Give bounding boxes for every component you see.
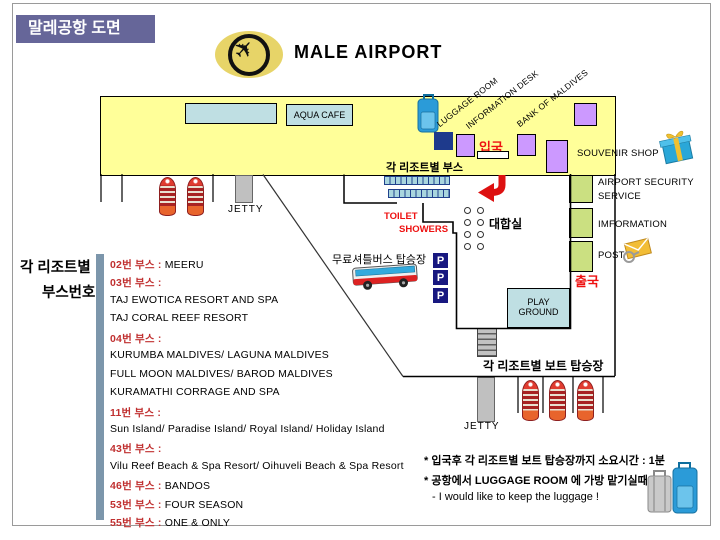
boat-icon [549,380,566,421]
boat-icon [187,177,204,216]
booth-list-item: 53번 부스 : FOUR SEASON [110,497,410,515]
luggage-pair-icon [645,462,699,516]
booth-list-item: KURAMATHI CORRAGE AND SPA [110,386,410,404]
gift-icon [655,125,700,168]
note-line2: * 공항에서 LUGGAGE ROOM 에 가방 맡기실때 [424,472,648,488]
security-label-line2: SERVICE [598,191,641,202]
jetty-north-label: JETTY [228,204,264,215]
booth-list-item: KURUMBA MALDIVES/ LAGUNA MALDIVES [110,349,410,367]
luggage-room-icon [416,94,439,134]
booth-row-1 [384,176,450,185]
booth-list-item: 02번 부스 : MEERU [110,257,410,275]
seat-icon [464,243,471,250]
seat-icon [477,207,484,214]
note-line3: - I would like to keep the luggage ! [432,491,599,503]
resort-booths-label: 각 리조트별 부스 [386,159,463,175]
boat-icon [522,380,539,421]
boat-icon [577,380,594,421]
security-label-line1: AIRPORT SECURITY [598,177,694,188]
arrival-gate-box [477,151,509,159]
booth-list-item: 11번 부스 : [110,405,410,423]
seat-icon [464,219,471,226]
jetty-pillar-south [477,377,495,422]
showers-label: SHOWERS [399,224,448,235]
booth-list-item: FULL MOON MALDIVES/ BAROD MALDIVES [110,368,410,386]
counter-box-3 [546,140,568,173]
boat-icon [159,177,176,216]
seat-icon [464,231,471,238]
panel-header-line1: 각 리조트별 [20,256,91,277]
departure-label: 출국 [575,271,599,290]
souvenir-shop-label: SOUVENIR SHOP [577,148,659,159]
waiting-room-label: 대합실 [489,215,522,232]
waiting-seats [464,207,484,250]
information-label: IMFORMATION [598,219,667,230]
booth-row-2 [388,189,450,198]
counter-box-1 [456,134,475,157]
aqua-cafe-box: AQUA CAFE [286,104,353,126]
seat-icon [477,243,484,250]
booth-list-item: 55번 부스 : ONE & ONLY [110,515,410,533]
booth-list-item: Sun Island/ Paradise Island/ Royal Islan… [110,423,410,441]
seat-icon [464,207,471,214]
seat-icon [477,231,484,238]
mail-icon [620,234,656,264]
panel-divider [96,254,104,520]
main-heading: MALE AIRPORT [294,42,442,63]
playground-box: PLAY GROUND [507,288,570,328]
terminal-shop-box [185,103,277,124]
counter-box-4 [574,103,597,126]
counter-box-2 [517,134,536,156]
toilet-label: TOILET [384,211,418,222]
booth-list-item: 43번 부스 : [110,441,410,459]
information-box [569,208,593,238]
booth-list-item: TAJ CORAL REEF RESORT [110,312,410,330]
parking-sign-icon: P [433,253,448,268]
jetty-pillar-north [235,175,253,203]
jetty-south-label: JETTY [464,421,500,432]
immigration-counter-box [434,132,453,150]
parking-sign-icon: P [433,270,448,285]
aqua-cafe-label: AQUA CAFE [294,110,346,120]
note-line1: * 입국후 각 리조트별 보트 탑승장까지 소요시간 : 1분 [424,452,665,468]
airport-map-page: 말레공항 도면 ✈ MALE AIRPORT AQUA CAFE 입국 LUGG… [0,0,720,540]
panel-header-line2: 부스번호 [42,281,95,302]
booth-list-item: TAJ EWOTICA RESORT AND SPA [110,294,410,312]
security-box [569,175,593,203]
stairs [477,328,497,357]
booth-list-item: 03번 부스 : [110,275,410,293]
booth-list: 02번 부스 : MEERU 03번 부스 : TAJ EWOTICA RESO… [110,257,410,534]
booth-list-item: 46번 부스 : BANDOS [110,478,410,496]
parking-sign-icon: P [433,288,448,303]
playground-label-line1: PLAY [508,297,569,307]
booth-list-item: Vilu Reef Beach & Spa Resort/ Oihuveli B… [110,460,410,478]
post-box [569,241,593,272]
playground-label-line2: GROUND [508,307,569,317]
boat-boarding-label: 각 리조트별 보트 탑승장 [483,357,603,374]
page-title: 말레공항 도면 [16,15,155,43]
booth-list-item: 04번 부스 : [110,331,410,349]
seat-icon [477,219,484,226]
